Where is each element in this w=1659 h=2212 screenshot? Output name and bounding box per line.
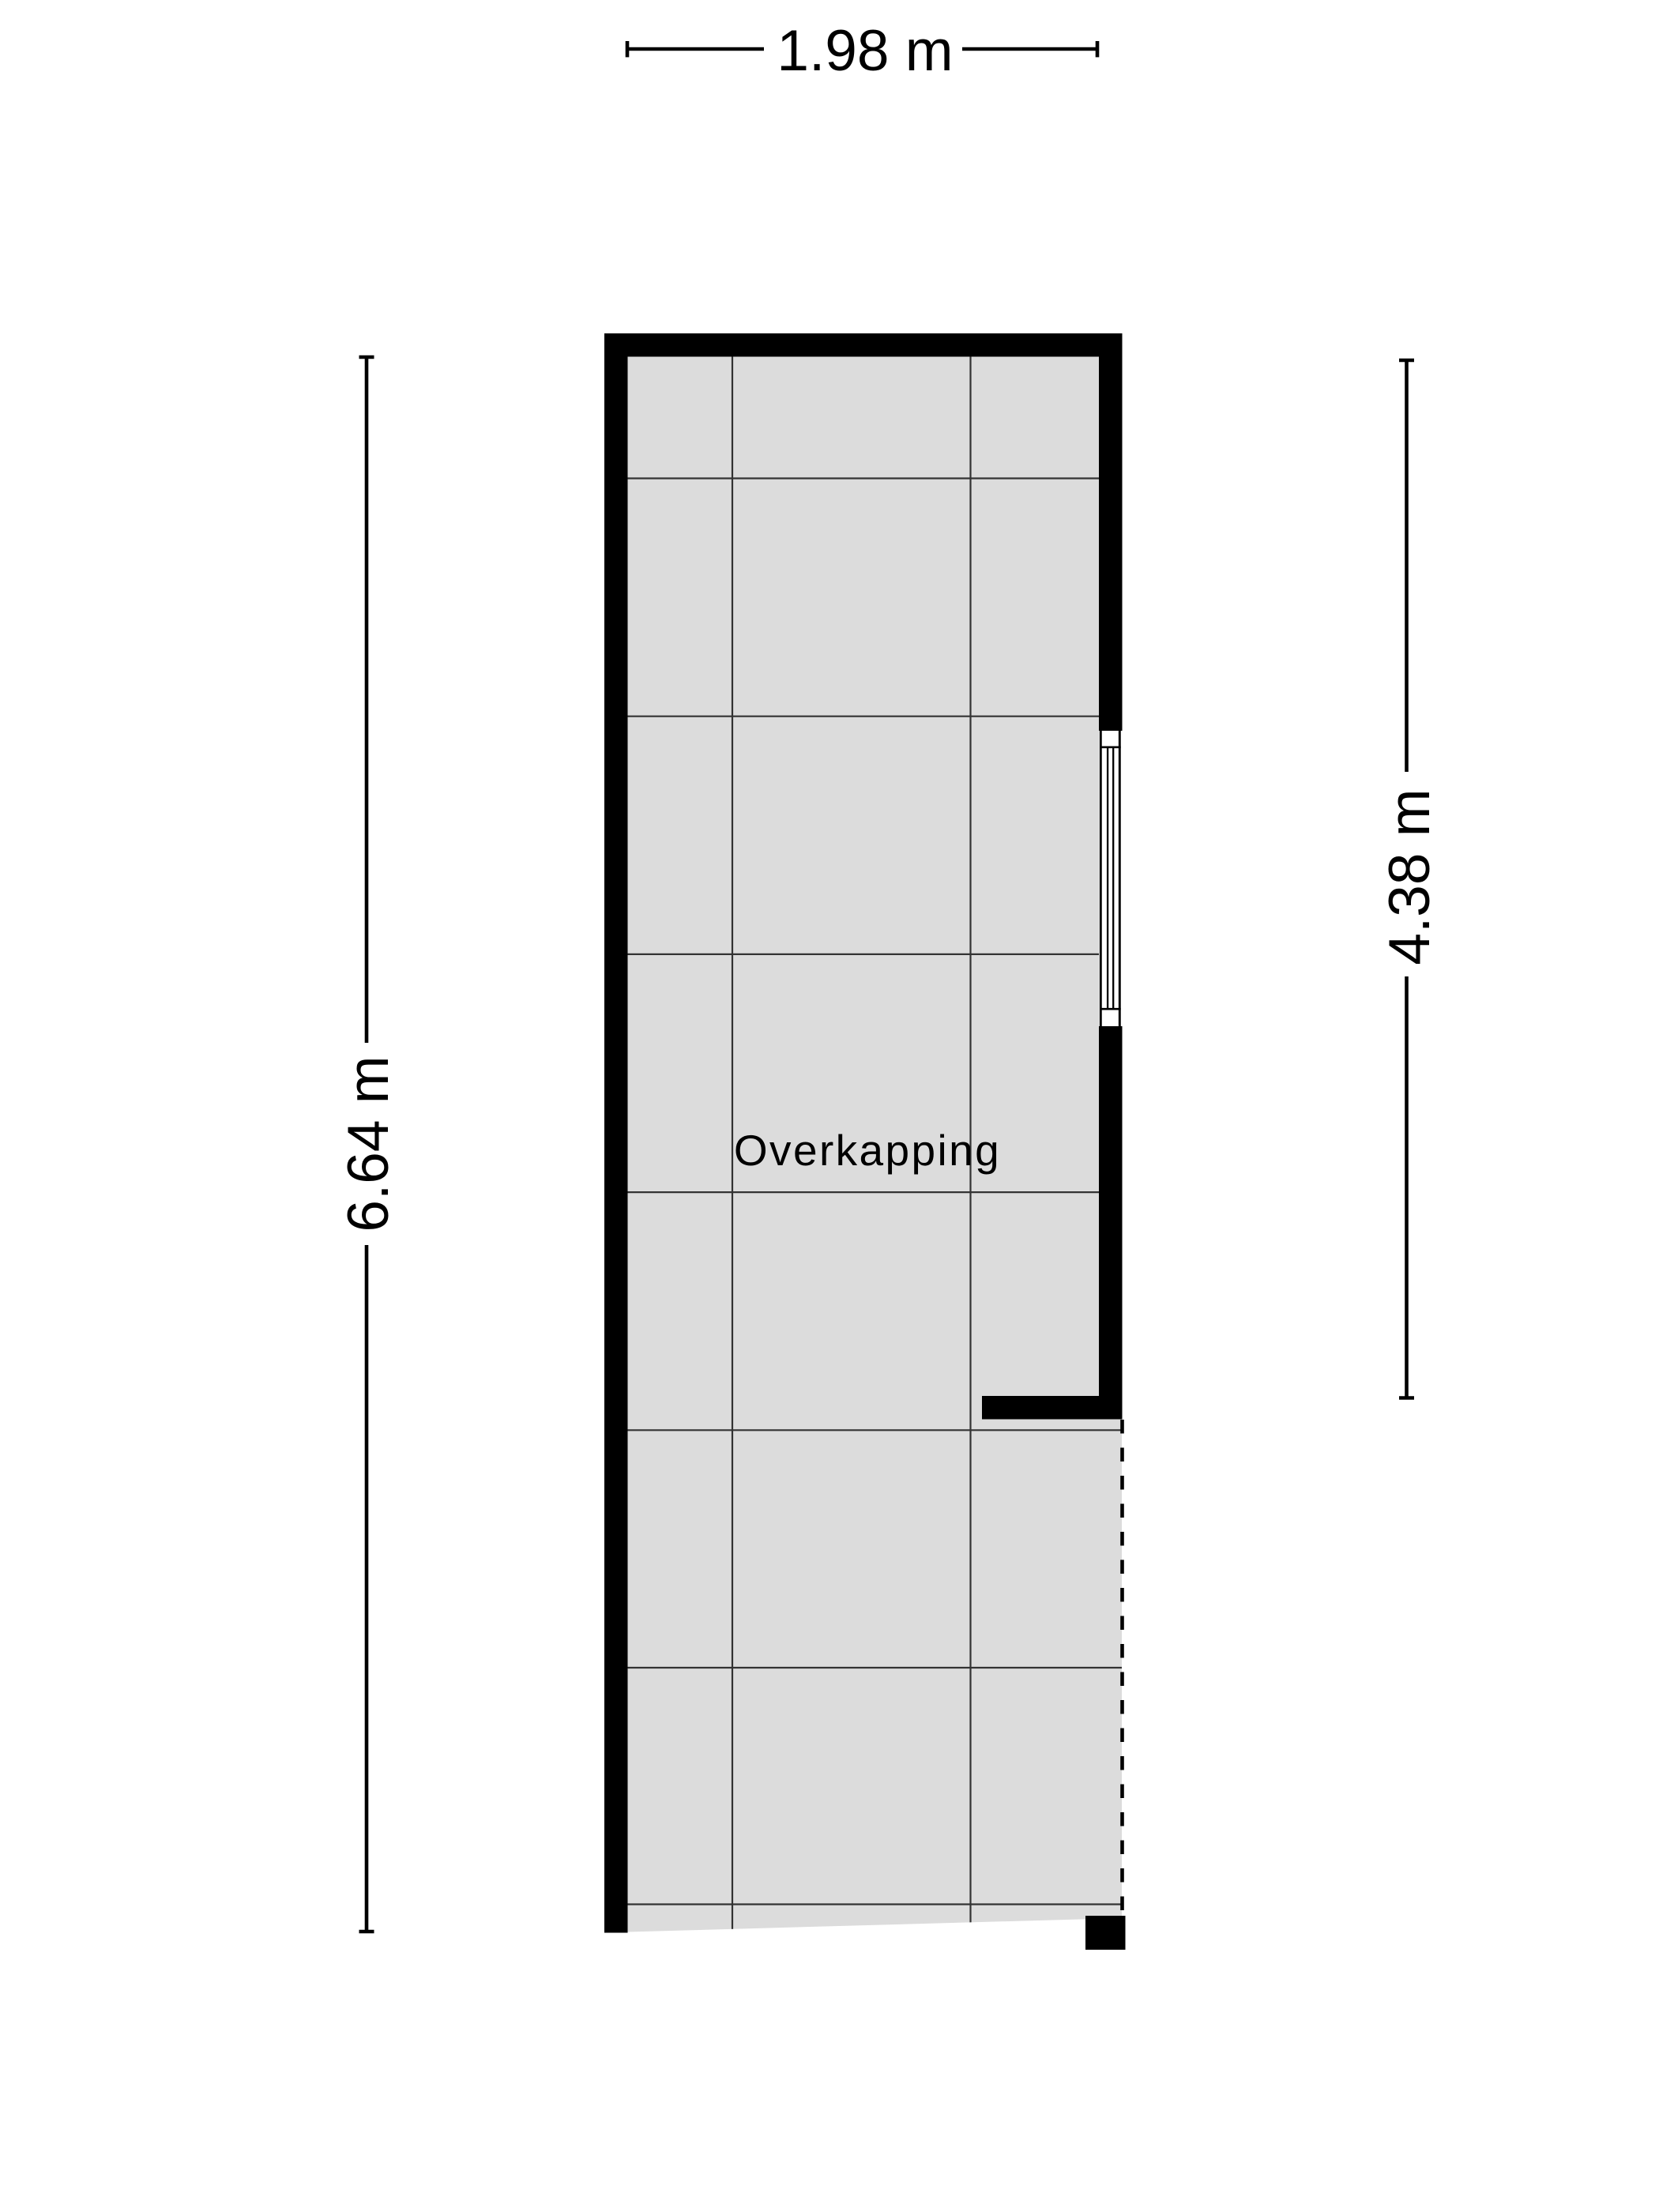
- svg-text:4.38 m: 4.38 m: [1378, 788, 1442, 965]
- svg-text:6.64 m: 6.64 m: [337, 1055, 401, 1232]
- svg-text:1.98 m: 1.98 m: [777, 19, 953, 83]
- svg-text:Overkapping: Overkapping: [734, 1126, 1001, 1175]
